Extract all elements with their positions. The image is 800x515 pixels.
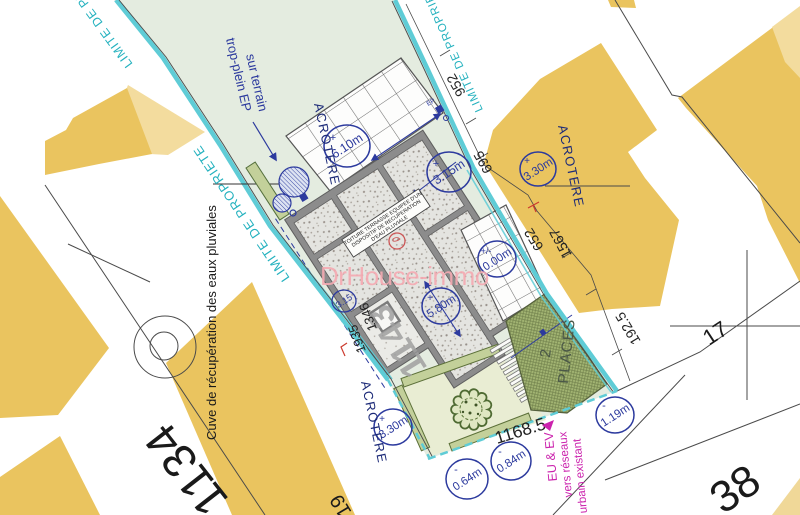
- svg-text:-: -: [498, 446, 502, 458]
- svg-text:+: +: [433, 158, 439, 170]
- svg-text:+/-: +/-: [481, 246, 492, 256]
- svg-text:2: 2: [537, 348, 555, 358]
- svg-text:DrHouse-immo: DrHouse-immo: [320, 261, 489, 291]
- svg-text:-: -: [454, 464, 458, 476]
- svg-text:+: +: [427, 293, 433, 304]
- svg-text:-: -: [602, 400, 606, 412]
- svg-text:+: +: [524, 156, 530, 167]
- svg-text:Cuve de récupération des eaux: Cuve de récupération des eaux pluviales: [204, 205, 219, 440]
